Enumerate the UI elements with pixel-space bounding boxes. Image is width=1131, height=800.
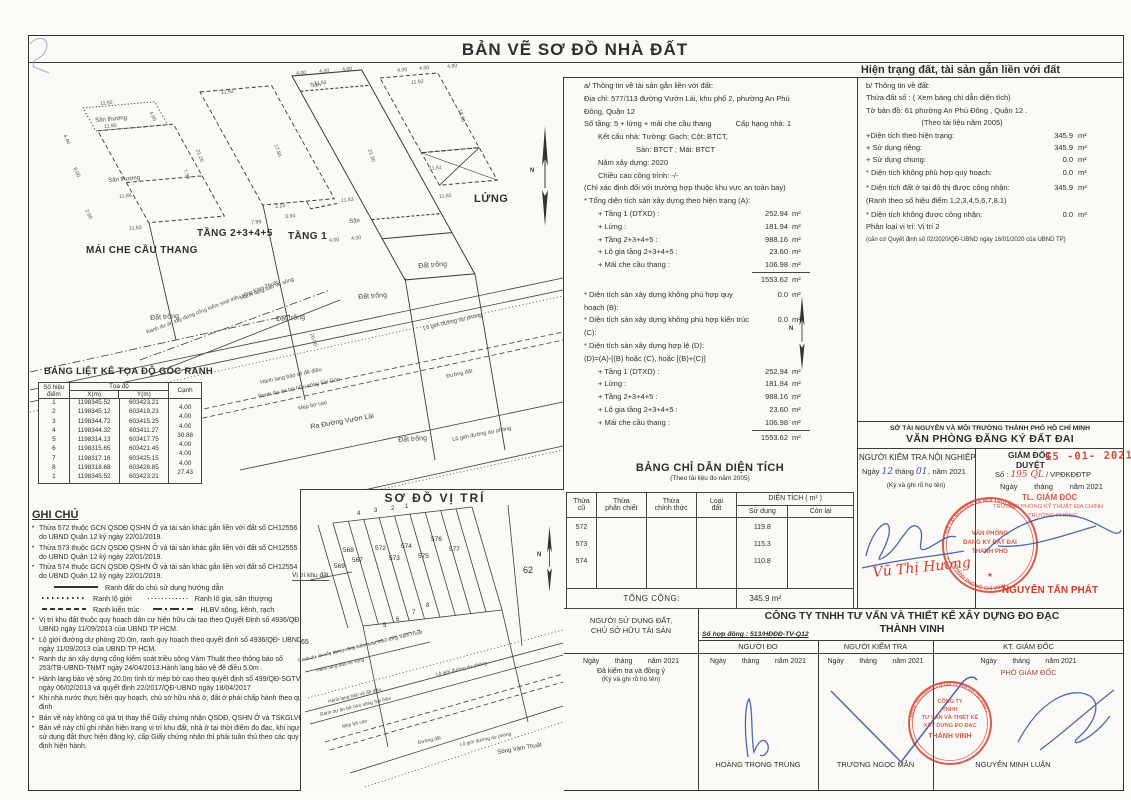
coord-col-coord: Tọa độ — [70, 383, 168, 391]
note-item: Khi nhà nước thực hiện quy hoạch, chủ sở… — [32, 694, 306, 712]
map-parcel-number: 569 — [334, 564, 345, 571]
map-parcel-number: 576 — [431, 537, 442, 544]
yard-label: Sân — [349, 218, 360, 225]
col-thua-phan-chiet: Thửa — [597, 498, 646, 505]
approved-note: Đã kiểm tra và đồng ý — [566, 668, 696, 675]
notes-section: GHI CHÚ Thửa 572 thuộc GCN QSDĐ QSHN Ở v… — [32, 511, 306, 753]
dim-label: 4.00 — [319, 69, 330, 75]
registry-stamp-line1: VĂN PHÒNG — [955, 531, 1025, 537]
map-corner-number: 7 — [412, 610, 415, 616]
col-con-lai: Còn lại — [788, 505, 854, 518]
roof-caption: MÁI CHE CẦU THANG — [86, 246, 198, 256]
legend-dashdot-line-icon — [153, 608, 193, 610]
date-blank: Ngày tháng năm 2021 — [933, 658, 1124, 665]
map-parcel-number: 573 — [389, 556, 400, 563]
surveyor-col-header: NGƯỜI ĐO — [698, 643, 818, 651]
legend-row: Ranh kiến trúc HLBV sông, kênh, rạch — [32, 605, 306, 614]
grade: Cấp hạng nhà: 1 — [736, 118, 791, 131]
land-user-title-2: CHỦ SỞ HỮU TÀI SẢN — [566, 627, 696, 635]
head-role: TRƯỞNG PHÒNG — [1028, 514, 1077, 520]
structure-line: Kết cấu nhà: Tường: Gạch; Cột: BTCT, — [584, 131, 810, 144]
registry-stamp-line2: ĐĂNG KÝ ĐẤT ĐAI — [950, 540, 1030, 546]
area-index-table: Thửacũ Thửaphân chiết Thửachính thức Loạ… — [566, 492, 854, 609]
boundary-note: (Ranh theo số hiệu điểm 1,2,3,4,5,6,7,8,… — [866, 195, 1098, 207]
dim-label: 11.90 — [104, 124, 117, 130]
dim-label: 4.80 — [447, 64, 458, 70]
coord-col-point: Số hiệu — [39, 384, 69, 391]
legend-label: Ranh lô gia, sân thượng — [195, 594, 272, 603]
company-stamp-line4: XÂY DỰNG ĐO ĐẠC — [910, 724, 990, 730]
map-corner-number: 1 — [405, 504, 408, 510]
dim-label: 2.24 — [275, 204, 286, 210]
director-approve: DUYỆT — [1016, 461, 1045, 470]
area-b-row: * Diện tích sàn xây dựng không phù hợp q… — [584, 289, 810, 315]
coordinate-table: Số hiệu điểm Tọa độ X(m) Y(m) Cạnh 1 2 3… — [38, 382, 202, 484]
map-corner-number: 2 — [391, 506, 394, 512]
land-user-title-1: NGƯỜI SỬ DỤNG ĐẤT, — [566, 617, 696, 625]
land-row: +Diện tích theo hiện trạng:345.9m² — [866, 130, 1098, 142]
map-corner-number: 6 — [396, 617, 399, 623]
internal-checker-title: NGƯỜI KIỂM TRA NỘI NGHIỆP — [859, 454, 973, 462]
doc-year-note: (Theo tài liệu năm 2005) — [866, 117, 1098, 129]
registry-split — [975, 448, 976, 608]
position-class-line: Phân loại vị trí: Vị trí 2 — [866, 221, 1098, 233]
scanned-land-survey-document: BẢN VẼ SƠ ĐỒ NHÀ ĐẤT Hiện trạng đất, tài… — [0, 0, 1131, 800]
map-parcel-number: 575 — [418, 554, 429, 561]
parcel-old-number: 572 — [567, 524, 596, 541]
point-id: 1 — [39, 399, 69, 408]
date-blank: Ngày tháng năm 2021 — [566, 658, 696, 665]
floor-1-caption: TẦNG 1 — [288, 232, 327, 242]
dim-label: 11.61 — [429, 166, 442, 172]
legend-row: Ranh lộ giới Ranh lô gia, sân thượng — [32, 594, 306, 603]
section-a-building-info: a/ Thông tin về tài sản gắn liền với đất… — [584, 80, 810, 444]
surveyor-name: HOÀNG TRỌNG TRUNG — [698, 761, 818, 769]
note-item: Thửa 572 thuộc GCN QSDĐ QSHN Ở và tài sả… — [32, 524, 306, 542]
divider-a-b — [857, 77, 858, 608]
land-row: + Sử dụng chung:0.0m² — [866, 154, 1098, 166]
parcel-used-area: 119.8 — [737, 524, 787, 541]
structure-line-2: Sàn: BTCT ; Mái: BTCT — [584, 144, 810, 157]
area-row: + Tầng 2+3+4+5 :988.16m² — [584, 234, 810, 247]
area-row-d: + Lửng :181.94m² — [584, 378, 810, 391]
address-line: Địa chỉ: 577/113 đường Vườn Lài, khu phố… — [584, 93, 810, 119]
section-b-land-info: b/ Thông tin về đất: Thửa đất số : ( Xem… — [866, 80, 1098, 246]
deputy-director-title: PHÓ GIÁM ĐỐC — [933, 669, 1124, 677]
tl-director: TL. GIÁM ĐỐC — [1022, 494, 1077, 502]
note-item: Thửa 573 thuộc GCN QSDĐ QSHN Ở và tài sả… — [32, 544, 306, 562]
registry-stamp-line3: THÀNH PHỐ — [955, 549, 1025, 555]
dim-label: 4.00 — [419, 66, 430, 72]
height-note: (Chỉ xác định đối với trường hợp thuộc k… — [584, 182, 810, 195]
point-x: 1198345.52 — [70, 399, 119, 408]
coord-col-edge: Cạnh — [169, 383, 202, 399]
registry-signer-name: NGUYỄN TẤN PHÁT — [988, 586, 1112, 596]
legend-label: Ranh kiến trúc — [93, 605, 139, 614]
registry-top-line — [857, 421, 1124, 422]
d-heading: * Diện tích sàn xây dựng hợp lệ (D): — [584, 340, 810, 353]
year-line: Năm xây dựng: 2020 — [584, 157, 810, 170]
received-date-stamp: 15 -01- 2021 — [1045, 450, 1131, 462]
map-site-label: Vị trí khu đất — [292, 573, 329, 581]
company-name-line — [698, 640, 1124, 641]
deputy-director-name: NGUYỄN MINH LUẬN — [933, 761, 1093, 769]
area-row-d: + Tầng 1 (DTXD) :252.94m² — [584, 366, 810, 379]
area-row: + Mái che cầu thang :106.98m² — [584, 259, 810, 272]
dim-label: 7.99 — [251, 220, 262, 226]
area-row: + Lô gia tầng 2+3+4+5 :23.60m² — [584, 246, 810, 259]
area-row-d: + Lô gia tầng 2+3+4+5 :23.60m² — [584, 404, 810, 417]
dim-label: 4.00 — [329, 238, 340, 244]
dim-label: 4.00 — [296, 71, 307, 77]
height-line: Chiều cao công trình: -/- — [584, 170, 810, 183]
total-a-label: * Tổng diện tích sàn xây dựng theo hiện … — [584, 195, 810, 208]
dim-label: 11.83 — [341, 198, 354, 204]
handwritten-month: 01. — [916, 467, 930, 477]
floors-line: Số tầng: 5 + lửng + mái che cầu thangCấp… — [584, 118, 810, 131]
note-item: Hành lang bảo vệ sông 20.0m tính từ mép … — [32, 675, 306, 693]
map-parcel-number: 567 — [352, 558, 363, 565]
area-row-d: + Tầng 2+3+4+5 :988.16m² — [584, 391, 810, 404]
page-title: BẢN VẼ SƠ ĐỒ NHÀ ĐẤT — [28, 41, 1122, 58]
map-parcel-number: 568 — [343, 548, 354, 555]
date-blank: Ngày tháng năm 2021 — [818, 658, 933, 665]
sheet-line: Tờ bản đồ: 61 phường An Phú Đông , Quận … — [866, 105, 1098, 117]
col-thua-chinh-thuc: Thửa — [647, 498, 696, 505]
sign-note: (Ký và ghi rõ họ tên) — [859, 483, 973, 490]
registry-dept: SỞ TÀI NGUYÊN VÀ MÔI TRƯỜNG THÀNH PHỐ HỒ… — [860, 426, 1120, 433]
map-parcel-number: 574 — [401, 544, 412, 551]
d-formula: (D)=(A)-[(B) hoặc (C), hoặc [(B)+(C)] — [584, 353, 810, 366]
dim-label: 11.92 — [411, 80, 424, 86]
company-stamp-line2: TNHH — [920, 708, 980, 714]
mezzanine-caption: LỬNG — [474, 194, 508, 205]
dim-label: 11.82 — [439, 194, 452, 200]
subtitle-underline — [563, 77, 1124, 78]
company-stamp-line3: TƯ VẤN VÀ THIẾT KẾ — [910, 716, 990, 722]
map-block-65: 65 — [301, 639, 309, 646]
director-col-header: KT. GIÁM ĐỐC — [933, 643, 1124, 651]
section-a-heading: a/ Thông tin về tài sản gắn liền với đất… — [584, 80, 810, 93]
company-stamp-line1: CÔNG TY — [920, 700, 980, 706]
edge-length: 4.00 — [169, 404, 201, 413]
total-d-row: 1553.62m² — [584, 430, 810, 445]
company-stamp-line5: THÀNH VINH — [910, 733, 990, 740]
inspector-col-header: NGƯỜI KIỂM TRA — [818, 643, 933, 651]
legend-label: HLBV sông, kênh, rạch — [200, 605, 274, 614]
dim-label: 3.94 — [285, 214, 296, 220]
legend-dashed-line-icon — [42, 608, 86, 610]
section-b-heading: b/ Thông tin về đất: — [866, 80, 1098, 92]
col-su-dung: Sử dụng — [737, 505, 788, 518]
legend-label: Ranh lộ giới — [93, 594, 132, 603]
area-total-label: TỔNG CỘNG: — [567, 589, 737, 609]
note-item: Ranh dự án xây dựng cống kiểm soát triều… — [32, 655, 306, 673]
land-row: * Diện tích không được công nhận:0.0m² — [866, 209, 1098, 221]
map-corner-number: 3 — [374, 508, 377, 514]
map-block-62: 62 — [523, 566, 533, 575]
dim-label: 4.00 — [351, 236, 362, 242]
director-date-line: Ngày tháng năm 2021 — [1000, 483, 1103, 491]
col-dien-tich: DIỆN TÍCH ( m² ) — [737, 493, 854, 506]
map-parcel-number: 572 — [375, 546, 386, 553]
map-parcel-number: 577 — [449, 547, 460, 554]
registry-stamp-star-icon: ★ — [980, 572, 1000, 579]
inspector-name: TRƯƠNG NGỌC MẪN — [818, 761, 933, 769]
internal-checker-date: Ngày 12 tháng 01. năm 2021 — [862, 468, 966, 477]
handwritten-doc-number: 195 QL — [1010, 470, 1043, 480]
sign-note: (Ký và ghi rõ họ tên) — [566, 677, 696, 684]
legend-row: Ranh đất do chủ sử dụng hướng dẫn — [32, 583, 306, 592]
dim-label: 4.00 — [397, 68, 408, 74]
map-corner-number: 4 — [357, 511, 360, 517]
land-row: * Diện tích đất ở tại đô thị được công n… — [866, 182, 1098, 194]
registry-header-line — [857, 448, 1124, 449]
land-row: + Sử dụng riêng:345.9m² — [866, 142, 1098, 154]
parcel-line: Thửa đất số : ( Xem bảng chỉ dẫn diện tí… — [866, 92, 1098, 104]
position-class-note: (căn cứ Quyết định số 02/2020/QĐ-UBND ng… — [866, 234, 1098, 246]
contract-number: Số hợp đồng : 513/HĐĐĐ-TV-Q12 — [702, 632, 809, 639]
map-corner-number: 5 — [383, 623, 386, 629]
technical-head-role: TRƯỞNG PHÒNG KỸ THUẬT ĐỊA CHÍNH — [993, 505, 1103, 511]
area-row: + Tầng 1 (DTXD) :252.94m² — [584, 208, 810, 221]
dim-label: 11.92 — [100, 101, 113, 107]
total-a-row: 1553.62m² — [584, 272, 810, 287]
note-item: Bản vẽ này chỉ ghi nhận hiện trạng vị tr… — [32, 724, 306, 751]
north-arrow-icon — [544, 526, 555, 592]
area-row-d: + Mái che cầu thang :106.98m² — [584, 417, 810, 430]
floors-2345-caption: TẦNG 2+3+4+5 — [197, 229, 273, 239]
note-item: Bản vẽ này không có giá trị thay thế Giấ… — [32, 714, 306, 723]
dim-label: 11.92 — [221, 90, 234, 96]
coord-col-y: Y(m) — [119, 391, 168, 398]
area-c-row: * Diện tích sàn xây dựng không phù hợp k… — [584, 314, 810, 340]
note-item: Lộ giới đường dự phòng 20.0m, ranh quy h… — [32, 636, 306, 654]
coord-table-title: BẢNG LIỆT KÊ TỌA ĐỘ GÓC RANH — [44, 367, 213, 377]
col-loai-dat: Loại — [697, 498, 737, 505]
north-arrow-icon — [538, 126, 552, 226]
company-colhead-line — [563, 653, 1124, 654]
north-letter: N — [530, 168, 534, 174]
area-table-title: BẢNG CHỈ DẪN DIỆN TÍCH — [595, 463, 825, 474]
coord-col-x: X(m) — [70, 391, 120, 398]
map-corner-number: 8 — [426, 603, 429, 609]
area-table-subtitle: (Theo tài liệu đo năm 2005) — [595, 476, 825, 483]
point-y: 603423.21 — [120, 399, 169, 408]
dim-label: 11.86 — [119, 194, 132, 200]
dim-label: 4.00 — [342, 67, 353, 73]
legend-dotted-line-icon — [42, 597, 86, 599]
dim-label: 11.92 — [314, 81, 327, 87]
handwritten-day: 12 — [882, 467, 893, 477]
company-name-line1: CÔNG TY TNHH TƯ VẤN VÀ THIẾT KẾ XÂY DỰNG… — [700, 611, 1124, 622]
north-letter: N — [537, 552, 541, 558]
document-number-line: Số : 195 QL / VPĐKĐĐTP — [995, 471, 1091, 480]
legend-solid-line-icon — [54, 586, 98, 588]
subtitle: Hiện trạng đất, tài sản gắn liền với đất — [700, 65, 1060, 76]
date-blank: Ngày tháng năm 2021 — [698, 658, 818, 665]
note-item: Thửa 574 thuộc GCN QSDĐ QSHN Ở và tài sả… — [32, 563, 306, 581]
col-thua-cu: Thửa — [567, 498, 596, 505]
legend-label: Ranh đất do chủ sử dụng hướng dẫn — [105, 583, 224, 592]
dim-label: 11.83 — [129, 226, 142, 232]
note-item: Vị trí khu đất thuộc quy hoạch dân cư hi… — [32, 616, 306, 634]
land-row: * Diện tích không phù hợp quy hoạch:0.0m… — [866, 167, 1098, 179]
registry-office: VĂN PHÒNG ĐĂNG KÝ ĐẤT ĐAI — [860, 434, 1120, 445]
notes-title: GHI CHÚ — [32, 511, 306, 520]
area-total-value: 345.9 m² — [737, 589, 854, 609]
area-row: + Lửng :181.94m² — [584, 221, 810, 234]
legend-fine-dotted-line-icon — [148, 598, 188, 599]
